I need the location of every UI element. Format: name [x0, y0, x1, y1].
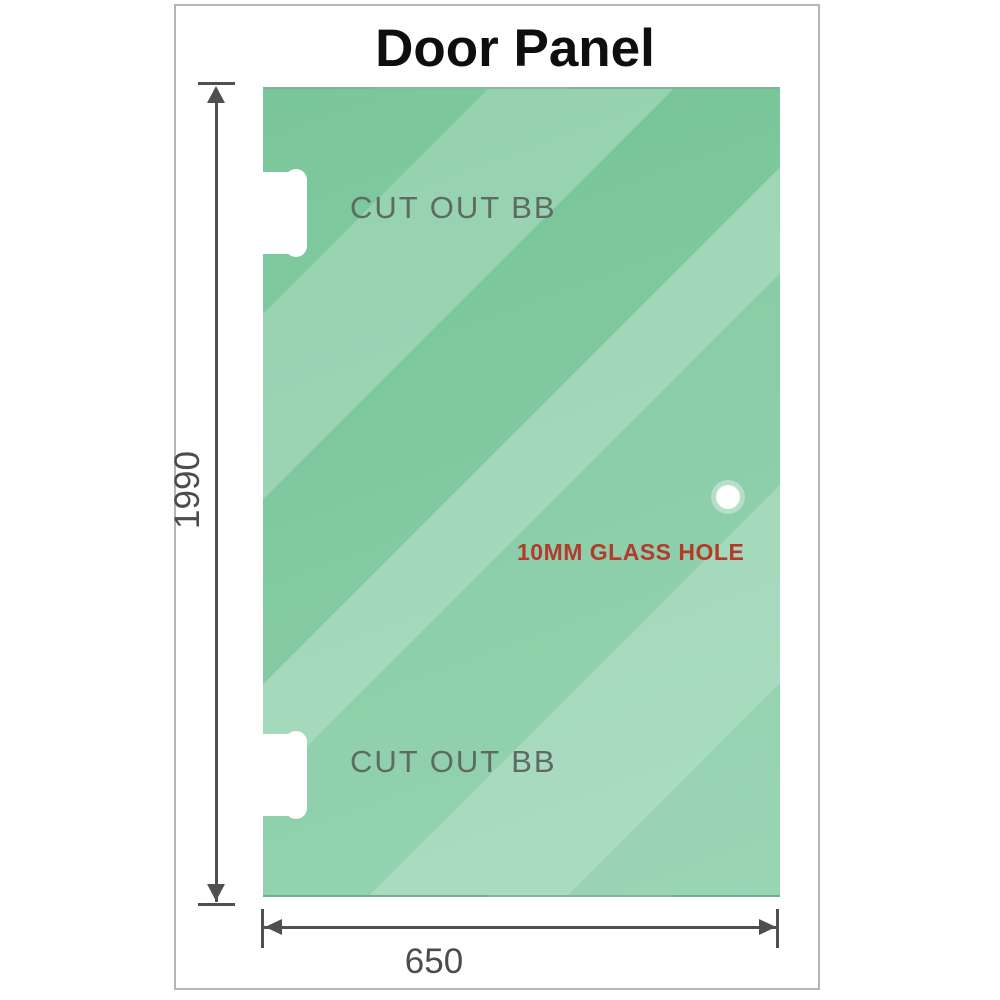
width-dim-tick-left: [261, 909, 264, 948]
glass-hole-icon: [716, 485, 740, 509]
hinge-cutout-bottom-icon: [250, 722, 320, 832]
width-dim-label: 650: [405, 942, 463, 982]
height-dim-cap-bottom: [198, 903, 235, 906]
cutout-label-top: CUT OUT BB: [350, 190, 557, 226]
height-dim-arrowhead-bottom-icon: [207, 884, 225, 901]
height-dim-cap-top: [198, 82, 235, 85]
width-dim-arrowhead-right-icon: [759, 919, 776, 935]
hinge-cutout-top-icon: [250, 160, 320, 270]
width-dim-tick-right: [776, 909, 779, 948]
cutout-label-bottom: CUT OUT BB: [350, 744, 557, 780]
height-dim-arrowhead-top-icon: [207, 86, 225, 103]
door-panel-diagram: Door Panel CUT OUT BB CUT OUT BB 10MM GL…: [0, 0, 1000, 1000]
width-dim-arrowhead-left-icon: [265, 919, 282, 935]
page-title: Door Panel: [190, 18, 840, 79]
height-dim-label: 1990: [168, 451, 208, 529]
height-dim-line: [215, 90, 218, 902]
width-dim-line: [263, 926, 777, 929]
glass-hole-label: 10MM GLASS HOLE: [517, 539, 744, 566]
